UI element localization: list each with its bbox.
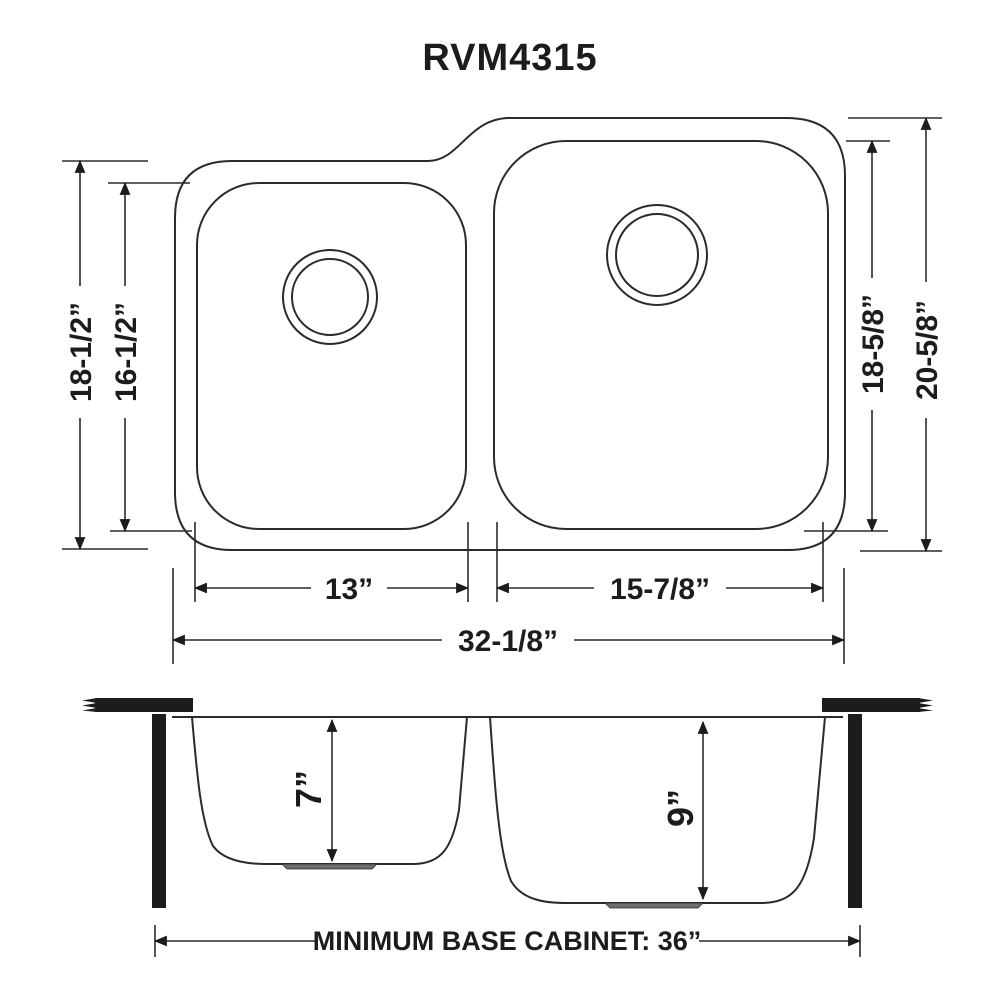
dim-label-right-outer: 20-5/8”: [911, 300, 944, 400]
dim-label-right-inner: 18-5/8”: [857, 294, 890, 394]
right-drain-icon: [607, 205, 707, 305]
dim-label-right-bowl-width: 15-7/8”: [610, 573, 710, 606]
top-view: 18-1/2” 16-1/2” 18-5/8”: [61, 118, 945, 664]
dim-label-right-depth: 9”: [660, 789, 701, 827]
dim-label-overall-width: 32-1/8”: [458, 625, 558, 658]
right-bowl-profile: [490, 717, 825, 903]
dim-label-left-depth: 7”: [288, 770, 329, 808]
dim-left-inner-height: 16-1/2”: [106, 183, 192, 531]
cabinet-wall-right: [848, 714, 862, 908]
page-title: RVM4315: [422, 37, 597, 79]
dim-left-bowl-width: 13”: [195, 522, 468, 607]
section-view: 7” 9” MINIMUM BASE CABINET: 36”: [82, 698, 933, 958]
dim-right-inner-height: 18-5/8”: [804, 141, 891, 531]
right-drain-section: [605, 903, 703, 908]
dim-label-left-outer: 18-1/2”: [65, 302, 98, 402]
dim-base-cabinet: MINIMUM BASE CABINET: 36”: [155, 924, 860, 958]
dim-label-base-cabinet: MINIMUM BASE CABINET: 36”: [313, 926, 702, 956]
left-drain-icon: [283, 250, 377, 344]
countertop-right: [822, 698, 933, 712]
dim-label-left-bowl-width: 13”: [325, 573, 373, 606]
countertop-left: [82, 698, 193, 712]
left-bowl-profile: [192, 717, 467, 864]
left-drain-section: [282, 864, 377, 869]
sink-dimension-diagram: RVM4315 18-1/2”: [0, 0, 1000, 1000]
dim-right-bowl-depth: 9”: [660, 722, 703, 899]
right-bowl-outline: [494, 141, 828, 529]
dim-left-bowl-depth: 7”: [288, 720, 332, 861]
dim-right-bowl-width: 15-7/8”: [497, 522, 823, 607]
left-bowl-outline: [197, 183, 466, 529]
dim-label-left-inner: 16-1/2”: [110, 302, 143, 402]
cabinet-wall-left: [152, 714, 166, 908]
dim-overall-width: 32-1/8”: [173, 568, 844, 664]
